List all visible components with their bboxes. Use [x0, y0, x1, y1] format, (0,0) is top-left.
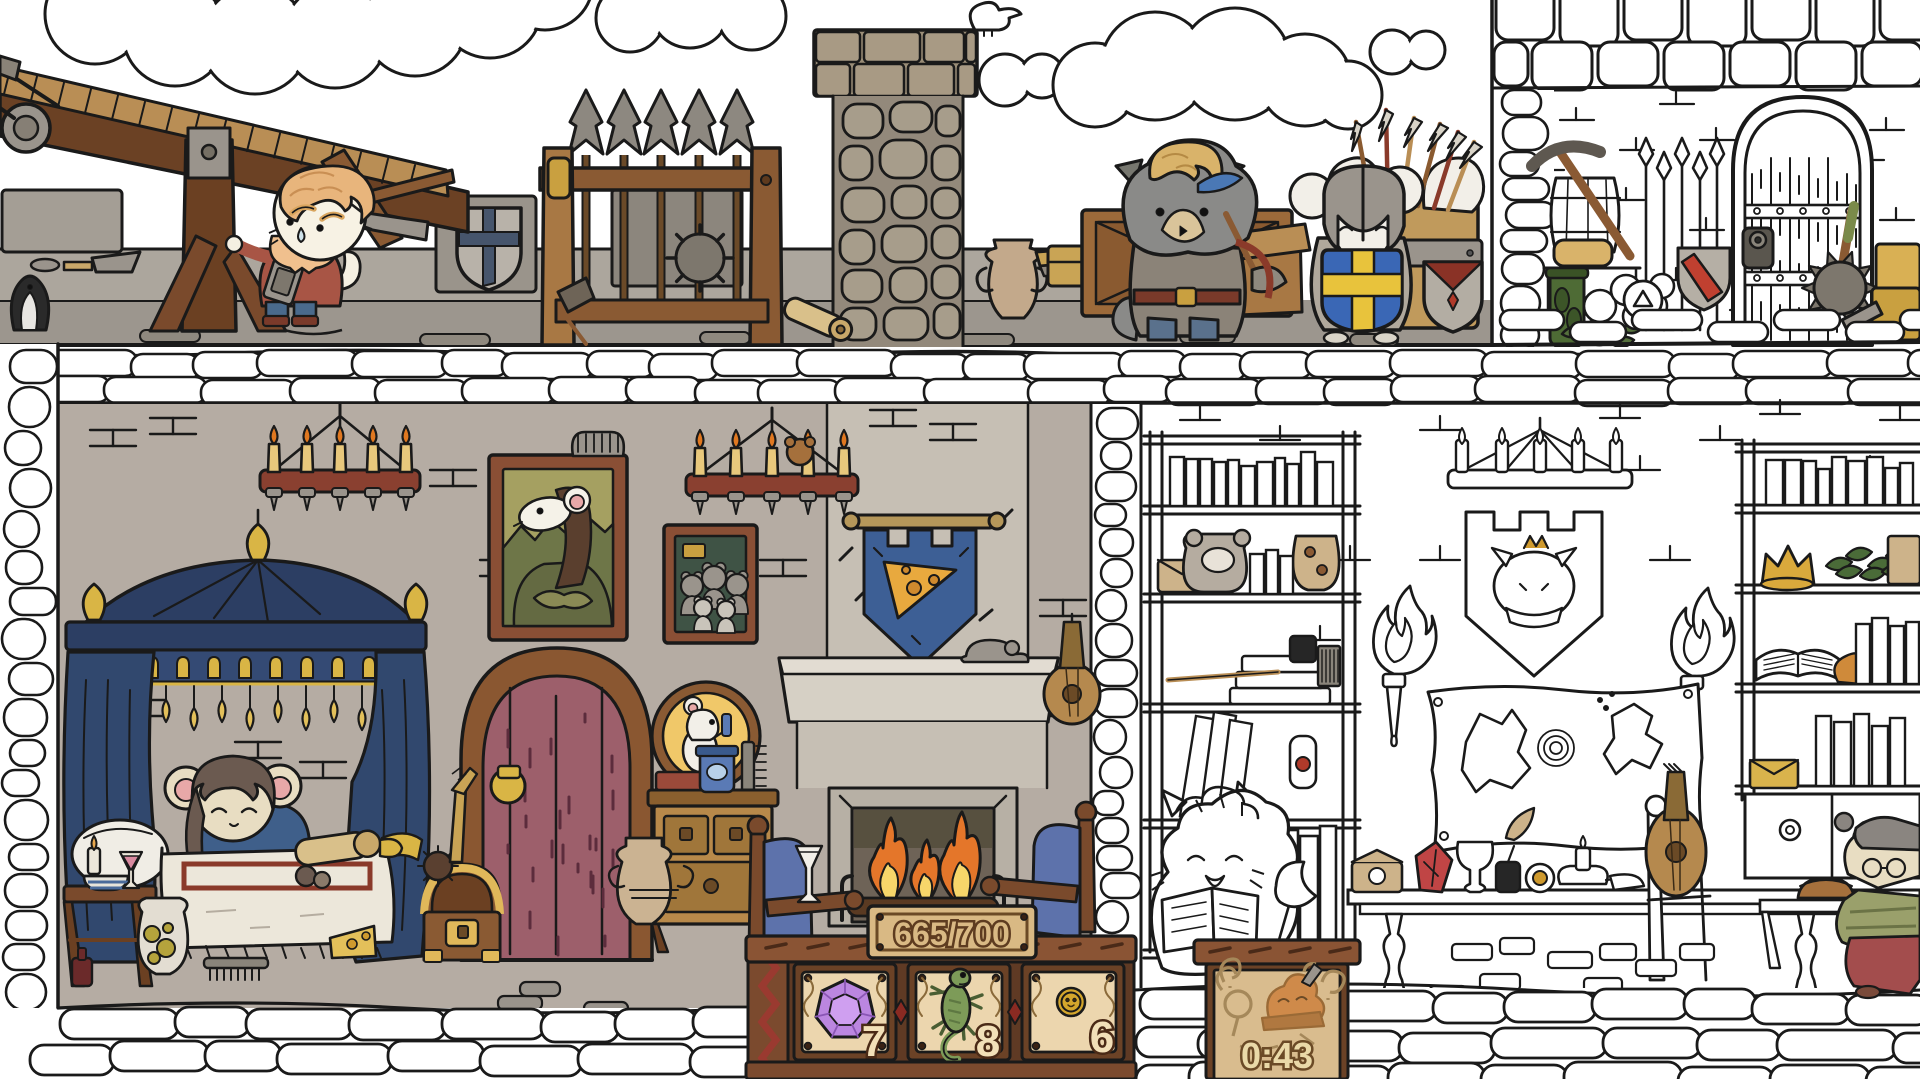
svg-text:0:43: 0:43	[1241, 1035, 1313, 1076]
svg-text:6: 6	[1090, 1013, 1114, 1062]
svg-text:665/700: 665/700	[894, 916, 1010, 952]
svg-text:8: 8	[976, 1017, 1000, 1066]
svg-text:7: 7	[862, 1017, 886, 1066]
